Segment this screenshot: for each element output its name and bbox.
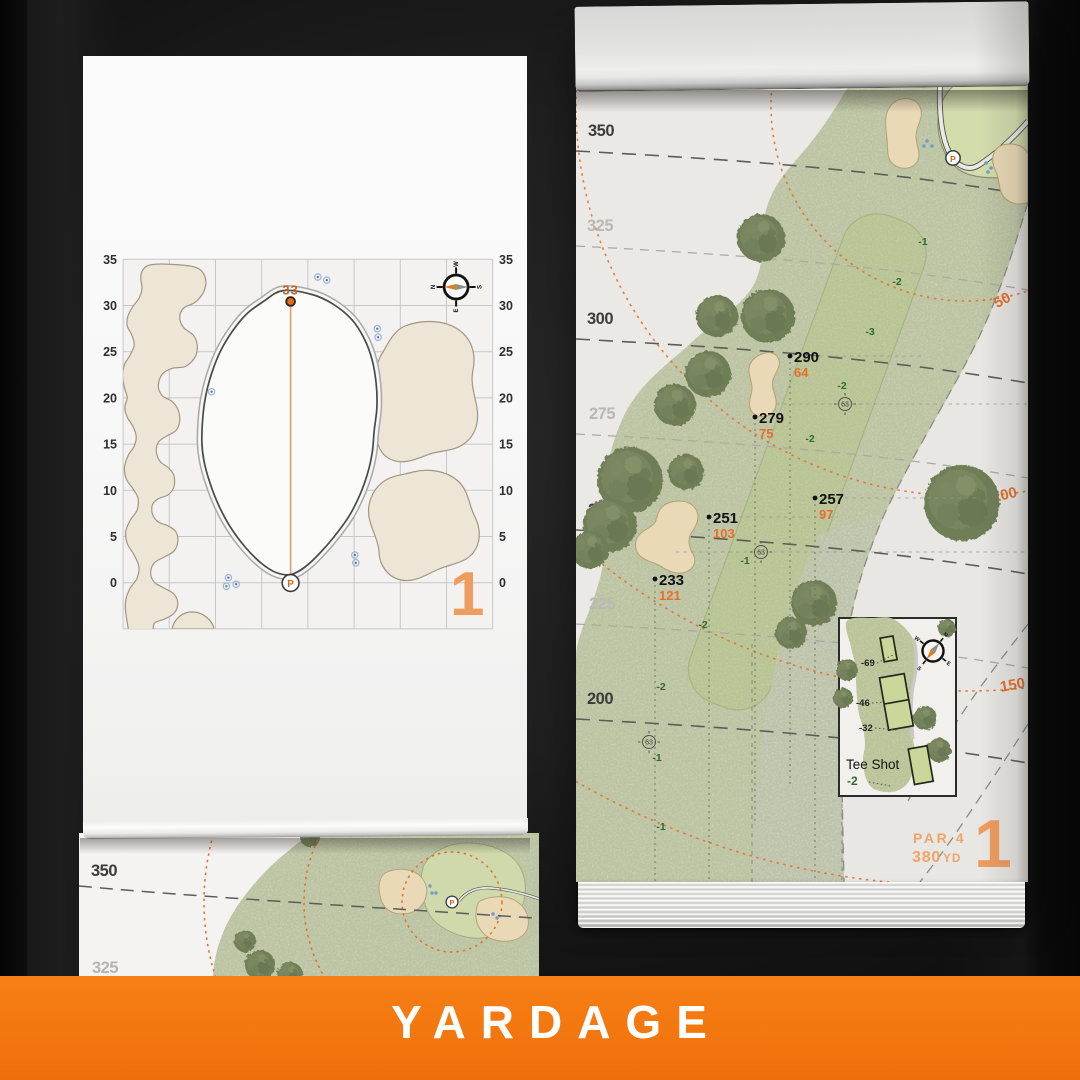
svg-text:290: 290	[794, 349, 819, 366]
svg-text:30: 30	[103, 299, 117, 313]
svg-text:5: 5	[110, 530, 117, 544]
svg-text:-46: -46	[856, 698, 870, 709]
svg-text:-69: -69	[861, 658, 875, 669]
svg-text:0: 0	[499, 576, 506, 590]
svg-text:-1: -1	[656, 821, 665, 833]
svg-text:-1: -1	[652, 752, 661, 764]
svg-text:64: 64	[794, 365, 809, 380]
svg-text:15: 15	[103, 438, 117, 452]
svg-text:Tee Shot: Tee Shot	[846, 757, 900, 772]
svg-text:E: E	[454, 308, 460, 312]
svg-text:W: W	[454, 261, 460, 267]
svg-text:350: 350	[588, 122, 614, 140]
svg-text:63: 63	[645, 740, 653, 747]
svg-text:1: 1	[450, 560, 484, 629]
svg-text:30: 30	[499, 299, 513, 313]
svg-text:10: 10	[103, 484, 117, 498]
svg-text:-32: -32	[859, 723, 873, 734]
svg-text:-2: -2	[698, 619, 707, 631]
svg-text:25: 25	[103, 345, 117, 359]
svg-text:75: 75	[759, 426, 773, 441]
svg-text:33: 33	[282, 283, 298, 298]
svg-text:63: 63	[841, 402, 849, 409]
svg-text:-2: -2	[656, 681, 665, 693]
svg-text:20: 20	[103, 391, 117, 405]
svg-text:0: 0	[110, 576, 117, 590]
svg-text:-1: -1	[740, 555, 749, 567]
svg-text:350: 350	[91, 862, 117, 880]
svg-text:-2: -2	[805, 433, 814, 445]
svg-text:225: 225	[589, 595, 615, 613]
svg-text:257: 257	[819, 491, 844, 508]
svg-text:-2: -2	[837, 380, 846, 392]
svg-text:200: 200	[587, 690, 613, 708]
svg-text:35: 35	[499, 253, 513, 267]
svg-text:25: 25	[499, 345, 513, 359]
svg-text:5: 5	[499, 530, 506, 544]
svg-text:PAR 4: PAR 4	[913, 830, 966, 846]
svg-text:P: P	[449, 898, 454, 907]
svg-text:103: 103	[713, 526, 735, 541]
svg-text:300: 300	[587, 310, 613, 328]
svg-text:325: 325	[92, 959, 118, 977]
svg-text:-2: -2	[892, 276, 901, 288]
svg-text:97: 97	[819, 507, 833, 522]
svg-text:-3: -3	[865, 326, 874, 338]
svg-text:P: P	[950, 154, 956, 164]
svg-text:325: 325	[587, 217, 613, 235]
svg-text:121: 121	[659, 588, 681, 603]
svg-text:P: P	[287, 579, 294, 590]
svg-text:15: 15	[499, 438, 513, 452]
svg-text:251: 251	[713, 510, 738, 527]
svg-text:279: 279	[759, 410, 784, 427]
svg-text:-1: -1	[918, 236, 927, 248]
svg-text:10: 10	[499, 484, 513, 498]
svg-text:-2: -2	[847, 774, 858, 788]
svg-text:35: 35	[103, 253, 117, 267]
svg-text:20: 20	[499, 391, 513, 405]
svg-text:N: N	[431, 285, 437, 289]
svg-text:233: 233	[659, 572, 684, 589]
svg-text:275: 275	[589, 405, 615, 423]
svg-text:63: 63	[757, 550, 765, 557]
svg-text:S: S	[478, 285, 484, 289]
